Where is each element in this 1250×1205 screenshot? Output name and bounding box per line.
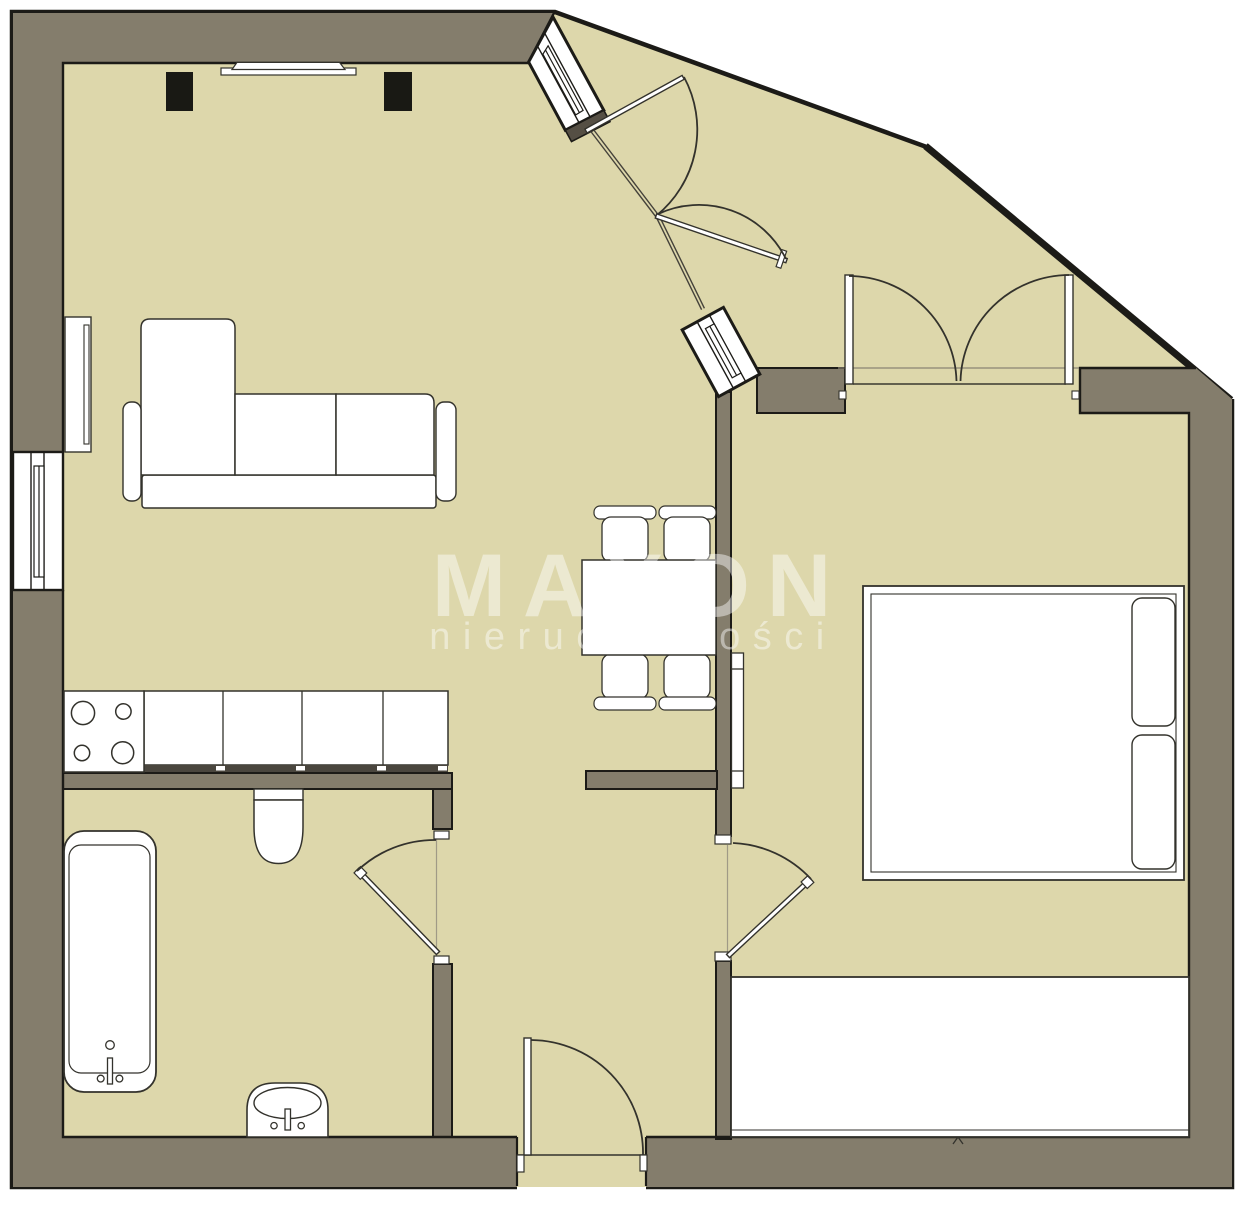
svg-text:nieruchomości: nieruchomości bbox=[429, 616, 837, 658]
